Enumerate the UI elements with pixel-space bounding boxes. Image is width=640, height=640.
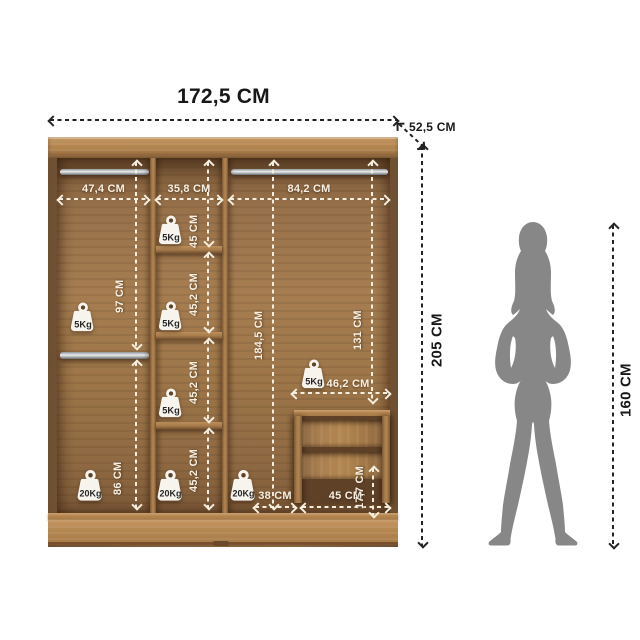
middle-compartment-3-label: 45,2 CM xyxy=(186,352,202,414)
shelf-2 xyxy=(156,332,222,339)
measure-right-full-height xyxy=(272,162,274,508)
person-height-label: 160 CM xyxy=(617,350,635,430)
drawer-top-width-label: 46,2 CM xyxy=(316,378,380,390)
wardrobe-floor-edge xyxy=(48,513,398,520)
measure-middle-section-width xyxy=(157,198,221,200)
measure-left-lower-height xyxy=(135,362,137,508)
measure-middle-compartment-4 xyxy=(207,430,209,508)
left-lower-height-label: 86 CM xyxy=(110,440,126,516)
drawer-width-label: 45 CM xyxy=(302,490,389,502)
measure-overall-height xyxy=(421,146,423,546)
measure-right-upper-height xyxy=(371,162,373,402)
svg-text:5Kg: 5Kg xyxy=(162,406,180,416)
hanging-rail-left-bottom-icon xyxy=(60,352,149,359)
hanging-rail-right-icon xyxy=(231,169,388,175)
svg-text:20Kg: 20Kg xyxy=(160,488,182,498)
floor-gap-width-label: 38 CM xyxy=(247,490,303,502)
right-full-height-label: 184,5 CM xyxy=(251,296,267,374)
measure-middle-compartment-1 xyxy=(207,162,209,245)
measure-person-height xyxy=(612,225,614,547)
wardrobe-dimension-diagram: 5Kg 5Kg 5Kg 5Kg 5Kg 20Kg 20Kg 20Kg 47,4 … xyxy=(0,0,640,640)
wardrobe-top-panel xyxy=(48,137,398,158)
svg-text:5Kg: 5Kg xyxy=(162,319,180,329)
overall-width-label: 172,5 CM xyxy=(50,85,397,109)
drawer-2 xyxy=(302,452,382,479)
svg-text:20Kg: 20Kg xyxy=(80,488,102,498)
overall-height-label: 205 CM xyxy=(428,299,446,381)
measure-drawer-width xyxy=(302,506,389,508)
measure-right-section-width xyxy=(230,198,388,200)
weight-20kg-icon: 20Kg xyxy=(154,469,187,503)
right-upper-height-label: 131 CM xyxy=(350,299,366,361)
drawer-unit-top xyxy=(294,410,390,416)
weight-5kg-icon: 5Kg xyxy=(68,301,98,334)
middle-compartment-2-label: 45,2 CM xyxy=(186,264,202,326)
person-silhouette xyxy=(477,221,589,547)
weight-5kg-icon: 5Kg xyxy=(156,387,186,420)
weight-20kg-icon: 20Kg xyxy=(74,469,107,503)
svg-text:5Kg: 5Kg xyxy=(74,320,92,330)
measure-middle-compartment-2 xyxy=(207,254,209,331)
measure-overall-width xyxy=(50,119,397,121)
weight-5kg-icon: 5Kg xyxy=(156,300,186,333)
overall-depth-label: 52,5 CM xyxy=(409,120,479,134)
weight-5kg-icon: 5Kg xyxy=(156,214,186,247)
measure-left-upper-height xyxy=(135,162,137,348)
measure-middle-compartment-3 xyxy=(207,340,209,421)
shelf-3 xyxy=(156,422,222,429)
plinth-notch xyxy=(213,541,229,546)
left-upper-height-label: 97 CM xyxy=(112,258,128,334)
drawer-height-label: 17,7 CM xyxy=(352,459,368,517)
measure-drawer-height xyxy=(372,468,374,516)
svg-text:5Kg: 5Kg xyxy=(162,233,180,243)
right-section-width-label: 84,2 CM xyxy=(230,183,388,195)
drawer-1 xyxy=(302,420,382,447)
middle-compartment-4-label: 45,2 CM xyxy=(186,440,202,502)
middle-section-width-label: 35,8 CM xyxy=(150,183,228,195)
middle-compartment-1-label: 45 CM xyxy=(186,202,202,260)
measure-drawer-top-width xyxy=(293,392,389,394)
measure-floor-gap-width xyxy=(255,506,295,508)
divider-right xyxy=(222,158,228,513)
